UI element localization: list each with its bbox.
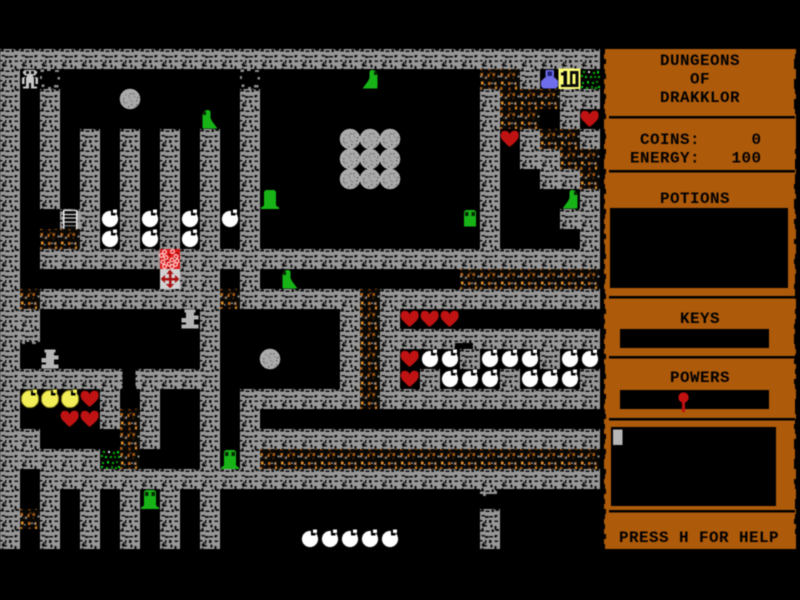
svg-text:KEYS: KEYS xyxy=(680,310,720,328)
svg-text:COINS:: COINS: xyxy=(640,131,700,149)
svg-text:0: 0 xyxy=(752,131,762,149)
svg-text:DRAKKLOR: DRAKKLOR xyxy=(660,89,740,107)
svg-text:100: 100 xyxy=(732,150,762,168)
svg-text:ENERGY:: ENERGY: xyxy=(630,150,700,168)
svg-text:DUNGEONS: DUNGEONS xyxy=(660,52,740,70)
svg-text:POTIONS: POTIONS xyxy=(660,190,730,208)
svg-text:PRESS H FOR HELP: PRESS H FOR HELP xyxy=(619,529,779,547)
svg-text:POWERS: POWERS xyxy=(670,369,730,387)
svg-text:OF: OF xyxy=(690,71,710,89)
